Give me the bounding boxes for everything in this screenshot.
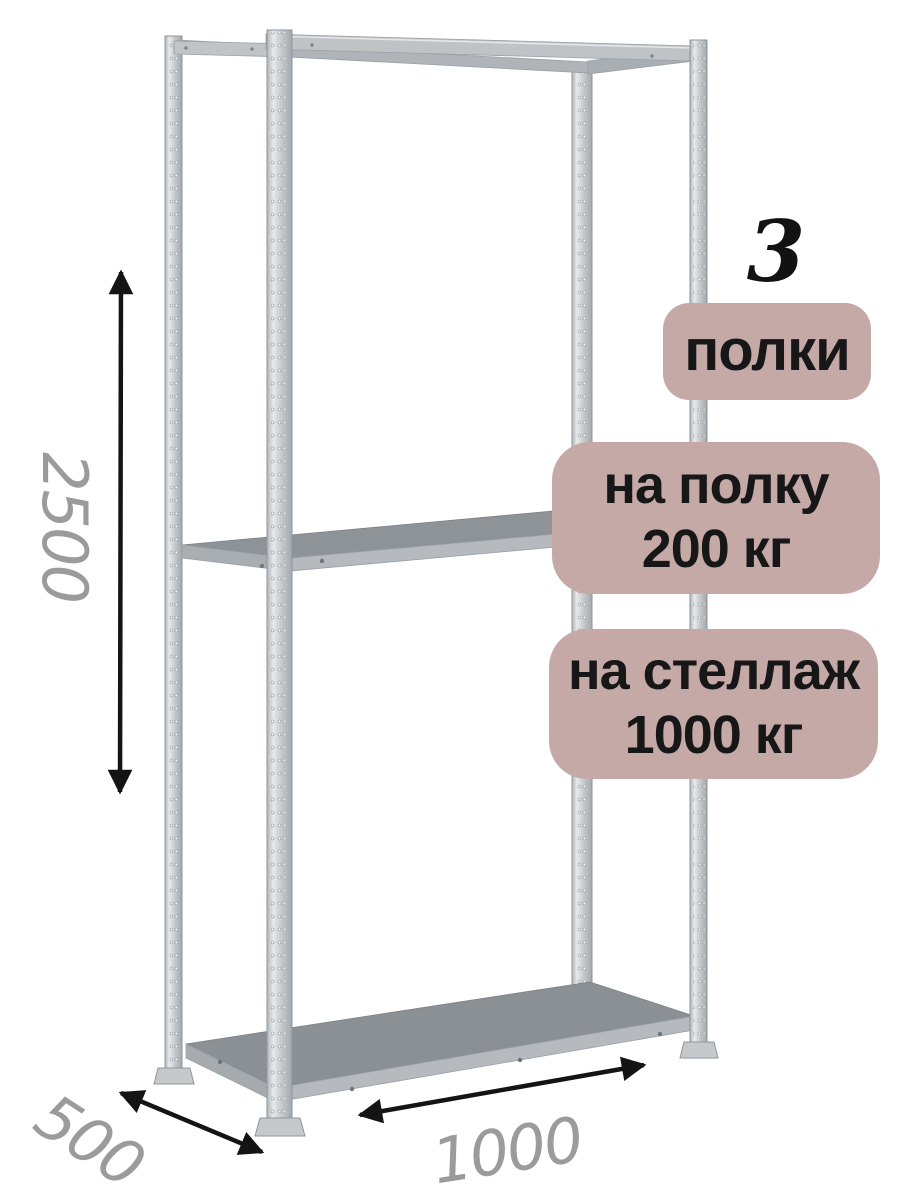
top-frame (174, 34, 694, 74)
per-rack-capacity-line1: на стеллаж (568, 640, 859, 704)
per-shelf-capacity-line2: 200 кг (642, 518, 791, 582)
rack-foot-back-left (154, 1068, 194, 1084)
per-rack-capacity-line2: 1000 кг (625, 704, 803, 768)
rack-post-front-left (255, 30, 305, 1136)
bottom-shelf (186, 982, 694, 1102)
rack-foot-front-right (680, 1042, 718, 1058)
height-dimension-arrow (120, 272, 121, 792)
rack-post-back-left (165, 36, 182, 1072)
shelf-count: 3 (732, 210, 820, 294)
shelf-count-badge: полки (663, 303, 871, 400)
per-shelf-capacity-badge: на полку 200 кг (552, 442, 880, 594)
shelf-count-badge-label: полки (684, 317, 850, 385)
product-image: 2500 500 1000 3 полки на полку 200 кг на… (0, 0, 900, 1200)
per-shelf-capacity-line1: на полку (603, 454, 828, 518)
rack-foot-front-left (255, 1118, 305, 1136)
per-rack-capacity-badge: на стеллаж 1000 кг (549, 629, 878, 779)
height-dimension-label: 2500 (33, 452, 95, 602)
shelving-rack-illustration (0, 0, 900, 1200)
